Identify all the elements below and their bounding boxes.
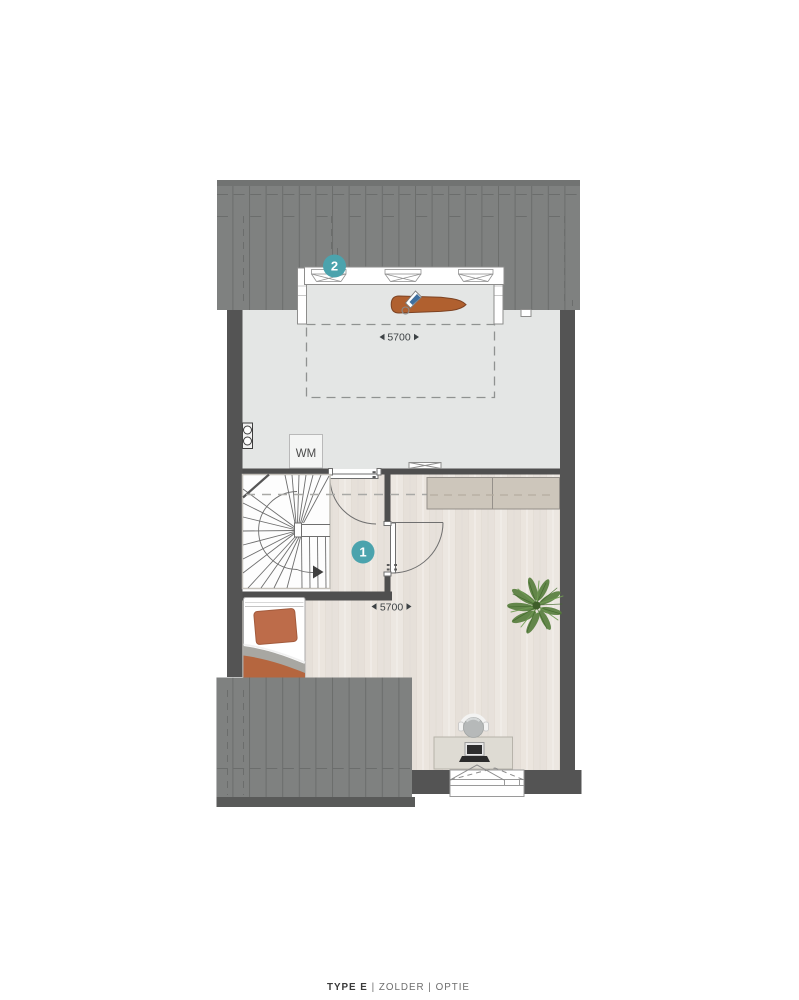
svg-text:2: 2 <box>331 259 338 274</box>
svg-text:1: 1 <box>359 545 366 560</box>
svg-text:5700: 5700 <box>387 332 411 344</box>
svg-text:5700: 5700 <box>380 602 404 614</box>
svg-text:TYPE E | ZOLDER | OPTIE: TYPE E | ZOLDER | OPTIE <box>327 982 470 993</box>
svg-text:WM: WM <box>296 448 316 460</box>
